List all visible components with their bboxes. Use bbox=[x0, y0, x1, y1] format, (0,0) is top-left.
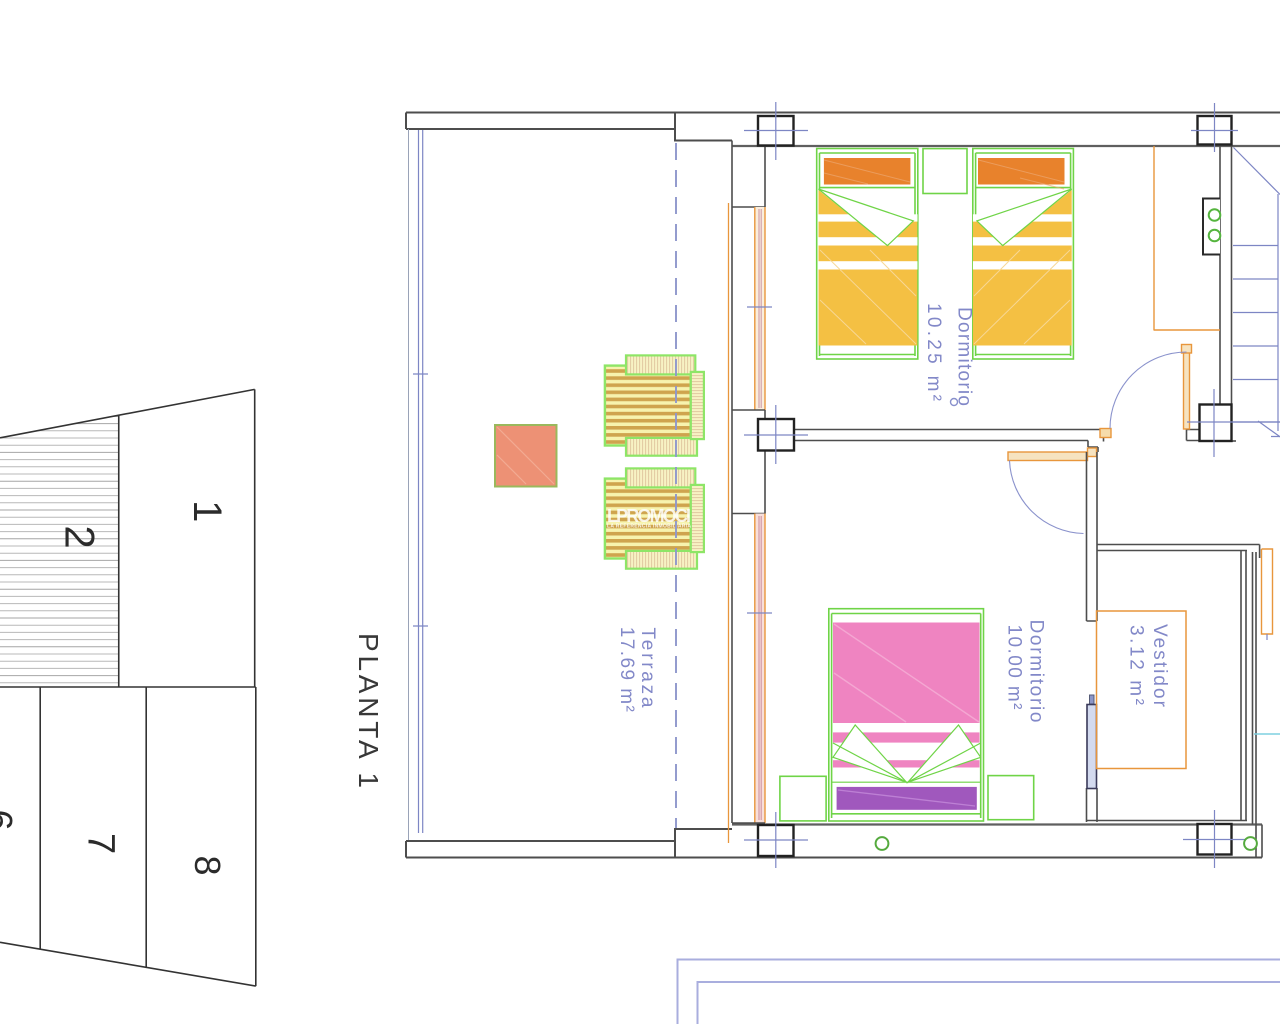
svg-text:8: 8 bbox=[187, 855, 228, 875]
svg-text:6: 6 bbox=[0, 809, 19, 830]
svg-text:PLANTA 1: PLANTA 1 bbox=[353, 633, 384, 788]
svg-text:Dormitorio: Dormitorio bbox=[1025, 620, 1046, 723]
svg-text:2: 2 bbox=[56, 525, 103, 548]
svg-text:10.00 m²: 10.00 m² bbox=[1003, 625, 1024, 710]
svg-text:7: 7 bbox=[79, 833, 121, 854]
svg-text:LA REFERENCIA INMOBILIARIA: LA REFERENCIA INMOBILIARIA bbox=[607, 524, 691, 530]
svg-text:17.69 m²: 17.69 m² bbox=[616, 627, 637, 712]
svg-text:Dormitorio: Dormitorio bbox=[954, 307, 975, 406]
svg-text:1: 1 bbox=[185, 500, 229, 522]
